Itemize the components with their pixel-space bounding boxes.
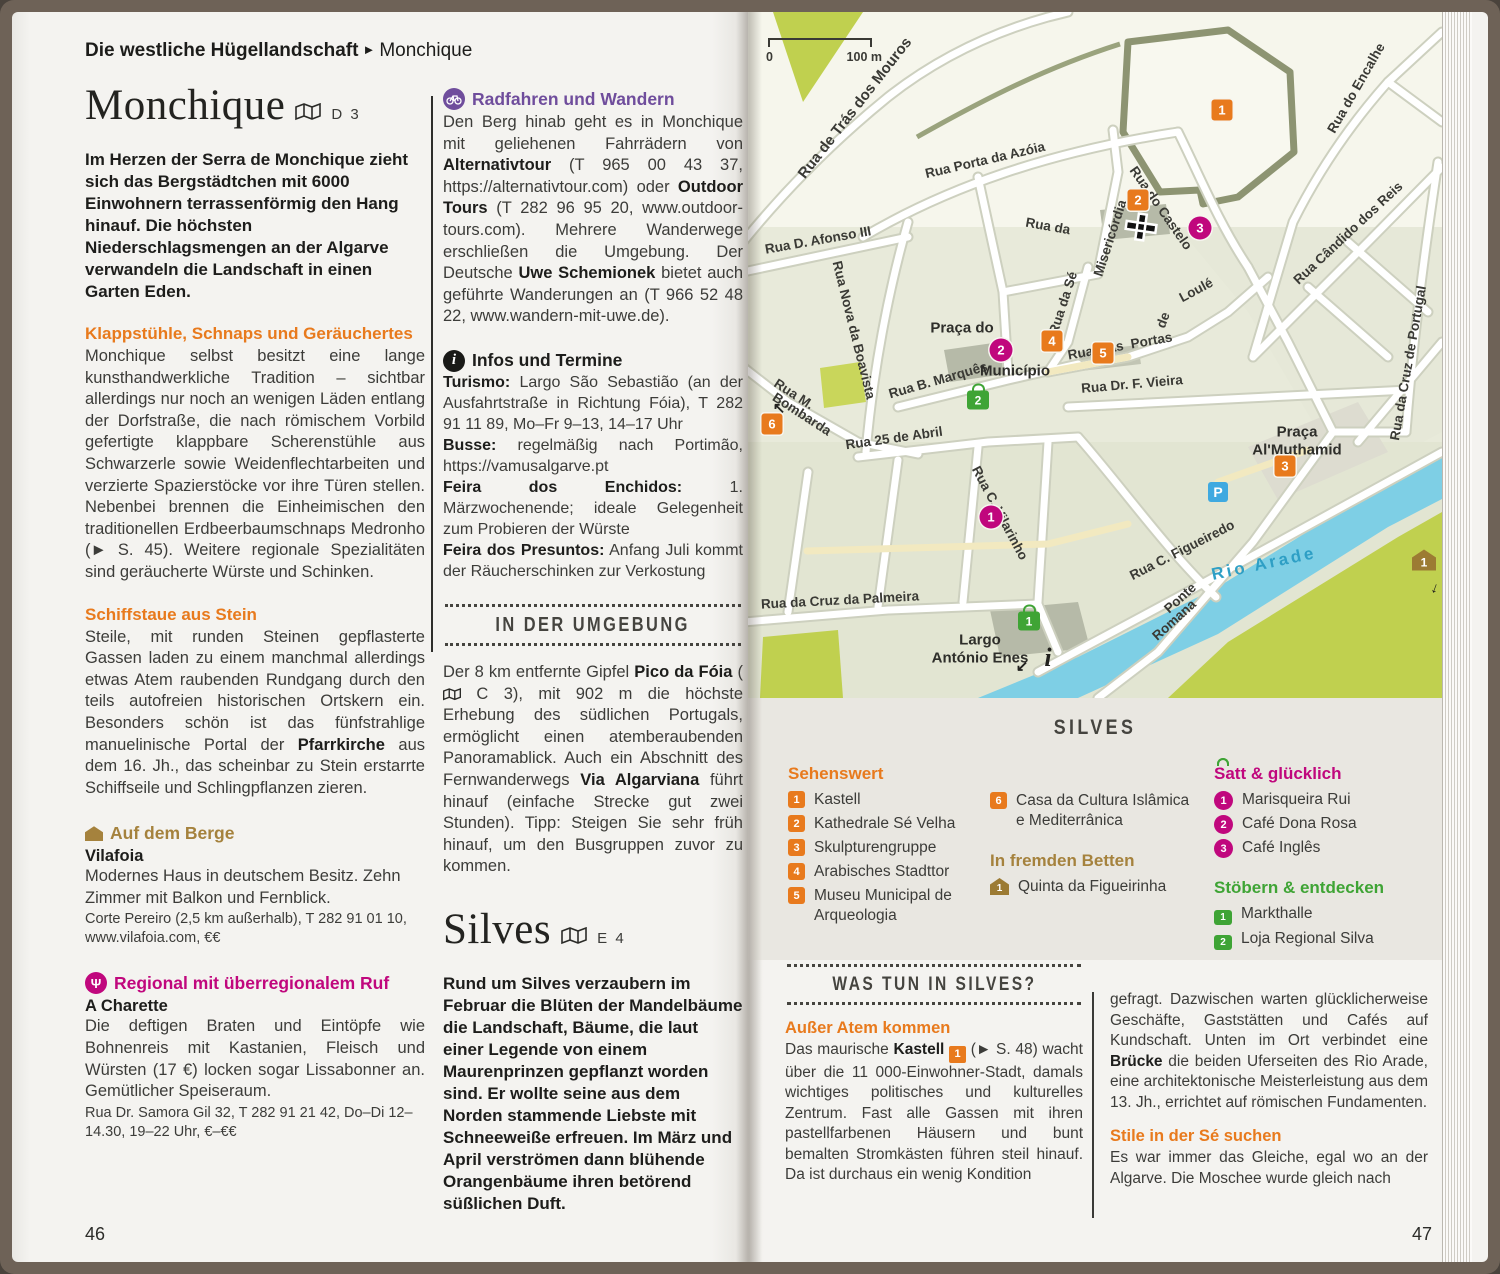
info-label: Turismo: bbox=[443, 374, 510, 391]
legend-sights-column: Sehenswert 1Kastell 2Kathedrale Sé Velha… bbox=[788, 764, 988, 930]
legend-item[interactable]: 1Quinta da Figueirinha bbox=[990, 877, 1190, 897]
legend-item-label: Loja Regional Silva bbox=[1241, 929, 1374, 949]
legend-item-label: Kathedrale Sé Velha bbox=[814, 814, 955, 834]
was-tun-section: WAS TUN IN SILVES? Außer Atem kommen Das… bbox=[748, 956, 1442, 1262]
legend-item[interactable]: 4Arabisches Stadttor bbox=[788, 862, 988, 882]
running-head: Die westliche Hügellandschaft►Monchique bbox=[85, 40, 472, 62]
bold-term: Kastell bbox=[894, 1041, 945, 1058]
infos-heading: i Infos und Termine bbox=[443, 350, 743, 372]
sight-marker-4: 4 bbox=[788, 863, 805, 880]
right-page: 0 100 m Rua de Trás dos Mouros Rua Porta… bbox=[748, 12, 1488, 1262]
legend-item-label: Quinta da Figueirinha bbox=[1018, 877, 1166, 897]
legend-item[interactable]: 3Café Inglês bbox=[1214, 838, 1429, 858]
legend-item[interactable]: 2Loja Regional Silva bbox=[1214, 929, 1429, 950]
was-tun-paragraph-1: Das maurische Kastell 1 (► S. 48) wacht … bbox=[785, 1040, 1083, 1186]
sight-marker-1: 1 bbox=[788, 791, 805, 808]
tourist-info-icon[interactable]: i bbox=[1044, 643, 1051, 673]
sight-marker-5: 5 bbox=[788, 887, 805, 904]
silves-city-map[interactable]: 0 100 m Rua de Trás dos Mouros Rua Porta… bbox=[748, 12, 1442, 698]
place-label: Praça bbox=[1277, 424, 1318, 441]
activities-heading-label: Radfahren und Wandern bbox=[472, 89, 675, 110]
legend-item[interactable]: 1Kastell bbox=[788, 790, 988, 810]
restaurant-details: Rua Dr. Samora Gil 32, T 282 91 21 42, D… bbox=[85, 1104, 425, 1142]
shop-marker-2: 2 bbox=[1214, 935, 1232, 950]
legend-item-label: Casa da Cultura Islâmica e Mediterrânica bbox=[1016, 791, 1190, 831]
shop-marker-2[interactable]: 2 bbox=[967, 391, 989, 410]
sight-marker-3[interactable]: 3 bbox=[1275, 456, 1296, 477]
bicycle-icon bbox=[443, 88, 465, 110]
was-tun-paragraph-3: Es war immer das Gleiche, egal wo an der… bbox=[1110, 1148, 1428, 1189]
info-line: Busse: regelmäßig nach Portimão, https:/… bbox=[443, 435, 743, 477]
was-tun-banner: WAS TUN IN SILVES? bbox=[785, 964, 1083, 1005]
sight-marker-6: 6 bbox=[990, 792, 1007, 809]
bold-term: Alternativtour bbox=[443, 156, 551, 174]
bold-term: Pico da Fóia bbox=[634, 663, 732, 681]
sight-marker-1: 1 bbox=[949, 1046, 966, 1063]
infos-heading-label: Infos und Termine bbox=[472, 350, 622, 371]
legend-item-label: Café Dona Rosa bbox=[1242, 814, 1357, 834]
silves-lead: Rund um Silves verzaubern im Februar die… bbox=[443, 973, 743, 1215]
surroundings-banner: IN DER UMGEBUNG bbox=[443, 604, 743, 646]
legend-item-label: Markthalle bbox=[1241, 904, 1313, 924]
was-tun-right-column: gefragt. Dazwischen warten glücklicherwe… bbox=[1110, 990, 1428, 1189]
map-scale-bar: 0 100 m bbox=[768, 38, 872, 47]
bold-term: Brücke bbox=[1110, 1053, 1163, 1070]
restaurant-heading-label: Regional mit überregionalem Ruf bbox=[114, 973, 389, 994]
body-paragraph: Monchique selbst besitzt eine lange kuns… bbox=[85, 346, 425, 584]
guidebook-spread: Die westliche Hügellandschaft►Monchique … bbox=[0, 0, 1500, 1274]
sight-marker-3: 3 bbox=[788, 839, 805, 856]
legend-title: SILVES bbox=[800, 716, 1390, 740]
food-marker-3[interactable]: 3 bbox=[1189, 217, 1212, 240]
arrow-sw-icon: ↙ bbox=[1016, 657, 1029, 675]
sight-marker-2[interactable]: 2 bbox=[1128, 190, 1149, 211]
bold-term: Pfarrkirche bbox=[298, 736, 385, 754]
legend-middle-column: 6Casa da Cultura Islâmica e Mediterrânic… bbox=[990, 764, 1190, 901]
text-run: Den Berg hinab geht es in Monchique mit … bbox=[443, 113, 743, 153]
arrow-nw-icon: ↖ bbox=[773, 399, 786, 417]
legend-item-label: Café Inglês bbox=[1242, 838, 1320, 858]
food-marker-1[interactable]: 1 bbox=[980, 506, 1003, 529]
restaurant-name: A Charette bbox=[85, 997, 425, 1016]
map-icon bbox=[295, 103, 321, 126]
food-marker-2: 2 bbox=[1214, 815, 1233, 834]
text-run: gefragt. Dazwischen warten glücklicherwe… bbox=[1110, 991, 1428, 1049]
page-stack-edge bbox=[1442, 12, 1472, 1262]
map-legend: SILVES Sehenswert 1Kastell 2Kathedrale S… bbox=[748, 698, 1442, 960]
shop-marker-1: 1 bbox=[1214, 910, 1232, 925]
place-label: António Enes bbox=[932, 650, 1029, 667]
bottom-column-divider bbox=[1092, 992, 1094, 1218]
was-tun-heading-2: Stile in der Sé suchen bbox=[1110, 1127, 1428, 1146]
legend-food-heading: Satt & glücklich bbox=[1214, 764, 1429, 784]
fork-icon: Ψ bbox=[85, 972, 107, 994]
legend-beds-heading: In fremden Betten bbox=[990, 851, 1190, 871]
place-label: Largo bbox=[959, 632, 1001, 649]
legend-item-label: Skulpturengruppe bbox=[814, 838, 936, 858]
legend-item[interactable]: 2Café Dona Rosa bbox=[1214, 814, 1429, 834]
scale-zero-label: 0 bbox=[766, 50, 773, 64]
surroundings-banner-label: IN DER UMGEBUNG bbox=[496, 607, 691, 643]
map-grid-ref: D 3 bbox=[331, 106, 360, 123]
was-tun-heading-1: Außer Atem kommen bbox=[785, 1019, 1083, 1038]
legend-item[interactable]: 5Museu Municipal de Arqueologia bbox=[788, 886, 988, 926]
legend-item-label: Museu Municipal de Arqueologia bbox=[814, 886, 988, 926]
food-marker-1: 1 bbox=[1214, 791, 1233, 810]
section-heading: Schiffstaue aus Stein bbox=[85, 604, 425, 625]
left-page: Die westliche Hügellandschaft►Monchique … bbox=[12, 12, 748, 1262]
house-icon bbox=[85, 826, 103, 841]
legend-item-label: Kastell bbox=[814, 790, 861, 810]
info-line: Feira dos Enchidos: 1. Märzwochenende; i… bbox=[443, 477, 743, 540]
restaurant-heading: Ψ Regional mit überregionalem Ruf bbox=[85, 972, 425, 994]
silves-title: Silves bbox=[443, 908, 551, 951]
sight-marker-4[interactable]: 4 bbox=[1042, 331, 1063, 352]
activities-paragraph: Den Berg hinab geht es in Monchique mit … bbox=[443, 112, 743, 328]
legend-item[interactable]: 2Kathedrale Sé Velha bbox=[788, 814, 988, 834]
text-run: ( bbox=[732, 663, 743, 681]
legend-shop-heading: Stöbern & entdecken bbox=[1214, 878, 1429, 898]
activities-heading: Radfahren und Wandern bbox=[443, 88, 743, 110]
legend-right-column: Satt & glücklich 1Marisqueira Rui 2Café … bbox=[1214, 764, 1429, 954]
legend-item-label: Arabisches Stadttor bbox=[814, 862, 949, 882]
food-marker-3: 3 bbox=[1214, 839, 1233, 858]
monchique-column: Monchique D 3 Im Herzen der Serra de Mon… bbox=[85, 84, 425, 1142]
was-tun-paragraph-2: gefragt. Dazwischen warten glücklicherwe… bbox=[1110, 990, 1428, 1113]
place-label: Município bbox=[980, 363, 1050, 380]
shop-marker-1[interactable]: 1 bbox=[1018, 612, 1040, 631]
bold-term: Via Algarviana bbox=[580, 771, 699, 789]
place-label: Praça do bbox=[930, 320, 993, 337]
arrow-right-icon: ► bbox=[358, 42, 379, 57]
info-line: Feira dos Presuntos: Anfang Juli kommt d… bbox=[443, 540, 743, 582]
running-head-section: Die westliche Hügellandschaft bbox=[85, 40, 358, 61]
dotted-rule bbox=[445, 643, 741, 646]
sight-marker-1[interactable]: 1 bbox=[1212, 100, 1233, 121]
legend-item[interactable]: 3Skulpturengruppe bbox=[788, 838, 988, 858]
info-line: Turismo: Largo São Sebastião (an der Aus… bbox=[443, 372, 743, 435]
lead-paragraph: Im Herzen der Serra de Monchique zieht s… bbox=[85, 149, 425, 303]
text-run: Der 8 km entfernte Gipfel bbox=[443, 663, 634, 681]
map-icon bbox=[443, 687, 461, 705]
legend-item[interactable]: 6Casa da Cultura Islâmica e Mediterrânic… bbox=[990, 791, 1190, 831]
bold-term: Uwe Schemionek bbox=[518, 264, 655, 282]
running-head-topic: Monchique bbox=[379, 40, 472, 61]
column-divider bbox=[431, 96, 433, 652]
map-grid-ref: E 4 bbox=[597, 930, 626, 947]
sight-marker-5[interactable]: 5 bbox=[1093, 343, 1114, 364]
hotel-body: Modernes Haus in deutschem Besitz. Zehn … bbox=[85, 866, 425, 909]
info-label: Feira dos Presuntos: bbox=[443, 542, 604, 559]
hotel-details: Corte Pereiro (2,5 km außerhalb), T 282 … bbox=[85, 910, 425, 948]
body-paragraph: Steile, mit runden Steinen gepflasterte … bbox=[85, 627, 425, 800]
text-run: Das maurische bbox=[785, 1041, 894, 1058]
hotel-name: Vilafoia bbox=[85, 847, 425, 866]
hotel-heading: Auf dem Berge bbox=[85, 823, 425, 844]
hotel-heading-label: Auf dem Berge bbox=[110, 823, 234, 844]
food-marker-2[interactable]: 2 bbox=[990, 339, 1013, 362]
text-run: (► S. 48) wacht über die 11 000-Einwohne… bbox=[785, 1041, 1083, 1183]
parking-icon[interactable]: P bbox=[1208, 482, 1228, 502]
page-title: Monchique bbox=[85, 84, 285, 127]
info-icon: i bbox=[443, 350, 465, 372]
place-label: Al'Muthamid bbox=[1252, 442, 1341, 459]
scale-distance-label: 100 m bbox=[847, 50, 882, 64]
sight-marker-2: 2 bbox=[788, 815, 805, 832]
legend-item-label: Marisqueira Rui bbox=[1242, 790, 1351, 810]
dotted-rule bbox=[787, 1002, 1081, 1005]
restaurant-body: Die deftigen Braten und Eintöpfe wie Boh… bbox=[85, 1016, 425, 1102]
page-number-left: 46 bbox=[85, 1224, 105, 1245]
map-icon bbox=[561, 927, 587, 950]
info-label: Busse: bbox=[443, 437, 496, 454]
legend-item[interactable]: 1Marisqueira Rui bbox=[1214, 790, 1429, 810]
legend-item[interactable]: 1Markthalle bbox=[1214, 904, 1429, 925]
bed-marker-1: 1 bbox=[990, 878, 1009, 895]
section-heading: Klappstühle, Schnaps und Geräuchertes bbox=[85, 323, 425, 344]
service-column: Radfahren und Wandern Den Berg hinab geh… bbox=[443, 78, 743, 1215]
page-number-right: 47 bbox=[1368, 1224, 1432, 1245]
surroundings-paragraph: Der 8 km entfernte Gipfel Pico da Fóia (… bbox=[443, 662, 743, 878]
info-label: Feira dos Enchidos: bbox=[443, 479, 682, 496]
was-tun-banner-label: WAS TUN IN SILVES? bbox=[832, 967, 1036, 1002]
legend-sights-heading: Sehenswert bbox=[788, 764, 988, 784]
was-tun-left-column: WAS TUN IN SILVES? Außer Atem kommen Das… bbox=[785, 964, 1083, 1186]
